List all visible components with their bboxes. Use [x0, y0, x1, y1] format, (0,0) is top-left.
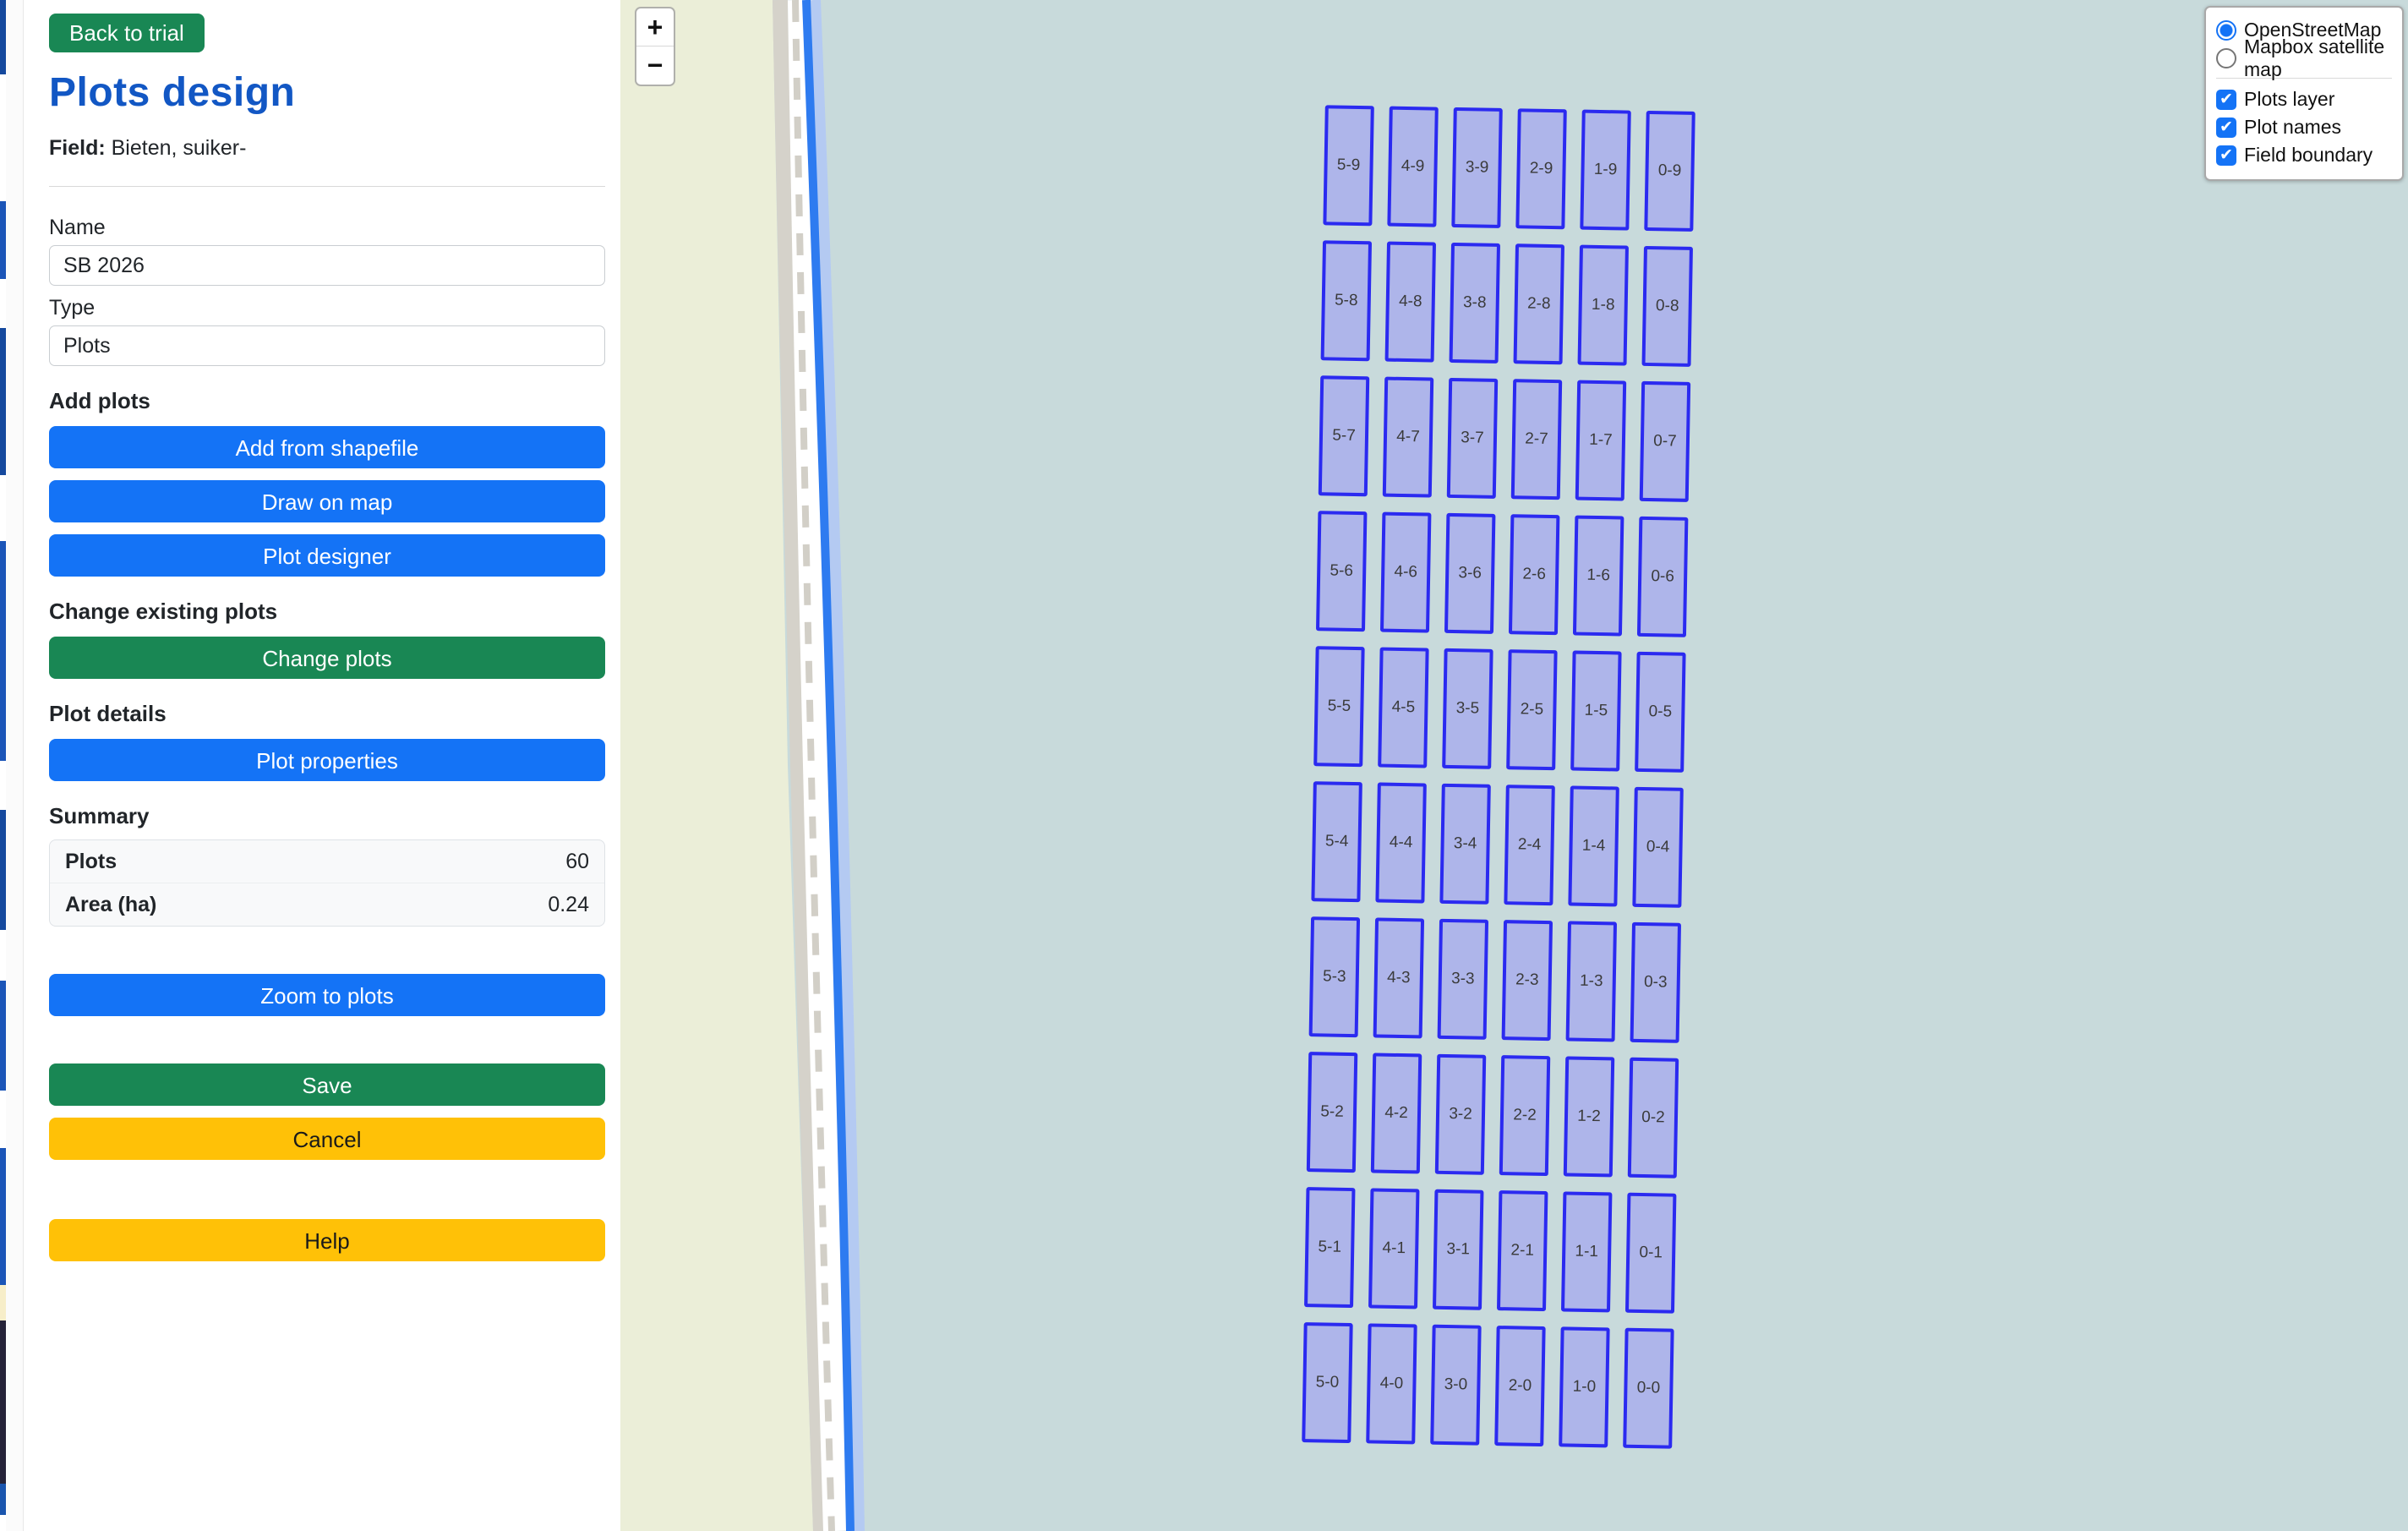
- save-button[interactable]: Save: [49, 1063, 605, 1106]
- checkbox-checked-icon[interactable]: ✔: [2216, 118, 2236, 138]
- plot-4-8[interactable]: 4-8: [1385, 242, 1436, 363]
- summary-area-value: 0.24: [548, 893, 589, 917]
- plot-4-6[interactable]: 4-6: [1380, 512, 1431, 633]
- plot-4-0[interactable]: 4-0: [1366, 1323, 1417, 1444]
- plot-label: 5-1: [1318, 1238, 1341, 1256]
- plot-label: 0-4: [1646, 838, 1670, 856]
- plot-label: 0-5: [1648, 703, 1672, 721]
- plot-0-5[interactable]: 0-5: [1635, 652, 1685, 773]
- summary-area-label: Area (ha): [65, 893, 156, 917]
- plot-label: 4-4: [1390, 834, 1413, 852]
- plot-3-6[interactable]: 3-6: [1444, 513, 1495, 634]
- plot-label: 4-6: [1394, 563, 1417, 582]
- plot-label: 2-3: [1515, 971, 1539, 989]
- plot-label: 0-8: [1656, 297, 1679, 315]
- divider: [49, 186, 605, 187]
- plot-label: 5-8: [1335, 292, 1358, 310]
- section-plot-details: Plot details: [49, 701, 605, 727]
- overlay-field-boundary-label: Field boundary: [2244, 144, 2373, 167]
- edge-strip-segment: [0, 761, 6, 810]
- plot-label: 2-2: [1513, 1106, 1537, 1124]
- change-plots-button[interactable]: Change plots: [49, 637, 605, 679]
- field-value: Bieten, suiker-: [112, 136, 247, 160]
- plot-1-5[interactable]: 1-5: [1570, 651, 1621, 772]
- plot-4-1[interactable]: 4-1: [1368, 1188, 1419, 1309]
- plot-5-1[interactable]: 5-1: [1304, 1187, 1355, 1308]
- plot-1-3[interactable]: 1-3: [1566, 921, 1617, 1042]
- plot-4-2[interactable]: 4-2: [1371, 1053, 1422, 1173]
- plot-label: 2-1: [1510, 1241, 1534, 1260]
- plot-label: 5-7: [1332, 427, 1356, 446]
- edge-strip-segment: [0, 1515, 6, 1531]
- plot-label: 1-1: [1575, 1243, 1598, 1261]
- edge-strip-segment: [0, 475, 6, 541]
- plot-label: 5-2: [1320, 1102, 1344, 1121]
- plot-1-7[interactable]: 1-7: [1575, 380, 1626, 501]
- plot-4-3[interactable]: 4-3: [1373, 917, 1424, 1038]
- plot-label: 5-4: [1325, 832, 1349, 850]
- plot-3-8[interactable]: 3-8: [1450, 243, 1500, 364]
- plot-0-2[interactable]: 0-2: [1628, 1058, 1679, 1178]
- edge-strip-segment: [0, 810, 6, 930]
- plot-2-0[interactable]: 2-0: [1494, 1326, 1545, 1446]
- page-title: Plots design: [49, 69, 605, 116]
- plot-2-6[interactable]: 2-6: [1509, 514, 1559, 635]
- plot-1-9[interactable]: 1-9: [1580, 110, 1630, 231]
- overlay-field-boundary[interactable]: ✔ Field boundary: [2216, 141, 2392, 169]
- plot-label: 0-1: [1639, 1244, 1663, 1262]
- window-edge-strip: [0, 0, 6, 1531]
- plot-label: 5-5: [1328, 697, 1351, 715]
- plot-0-3[interactable]: 0-3: [1630, 922, 1681, 1043]
- plot-label: 5-3: [1323, 967, 1346, 986]
- plot-3-3[interactable]: 3-3: [1438, 919, 1488, 1040]
- edge-strip-segment: [0, 74, 6, 201]
- plot-label: 3-5: [1455, 699, 1479, 718]
- plot-0-0[interactable]: 0-0: [1623, 1328, 1674, 1449]
- plot-label: 1-8: [1592, 296, 1615, 314]
- radio-selected-icon[interactable]: [2216, 20, 2236, 41]
- plot-label: 3-0: [1444, 1375, 1468, 1394]
- summary-row-area: Area (ha) 0.24: [50, 883, 604, 926]
- plot-0-4[interactable]: 0-4: [1632, 787, 1683, 908]
- plot-0-9[interactable]: 0-9: [1644, 111, 1695, 232]
- plot-4-4[interactable]: 4-4: [1375, 783, 1426, 904]
- map-canvas[interactable]: 5-94-93-92-91-90-95-84-83-82-81-80-85-74…: [620, 0, 2408, 1531]
- plot-label: 2-5: [1520, 700, 1543, 719]
- plot-label: 3-3: [1451, 970, 1475, 988]
- plot-label: 4-2: [1384, 1104, 1408, 1123]
- plot-3-2[interactable]: 3-2: [1435, 1054, 1486, 1175]
- plot-label: 4-7: [1396, 428, 1420, 446]
- radio-unselected-icon[interactable]: [2216, 48, 2236, 68]
- plot-label: 0-3: [1644, 973, 1668, 992]
- summary-row-plots: Plots 60: [50, 840, 604, 883]
- help-button[interactable]: Help: [49, 1219, 605, 1261]
- zoom-in-button[interactable]: +: [636, 8, 674, 46]
- edge-strip-segment: [0, 1484, 6, 1515]
- plot-3-1[interactable]: 3-1: [1433, 1189, 1483, 1310]
- plot-1-1[interactable]: 1-1: [1561, 1191, 1612, 1312]
- field-info: Field: Bieten, suiker-: [49, 136, 605, 161]
- plot-label: 1-5: [1584, 702, 1608, 720]
- plot-label: 3-4: [1454, 834, 1477, 853]
- plot-5-8[interactable]: 5-8: [1321, 240, 1372, 361]
- name-input[interactable]: [49, 245, 605, 286]
- summary-plots-value: 60: [565, 850, 589, 874]
- plots-grid: 5-94-93-92-91-90-95-84-83-82-81-80-85-74…: [1302, 105, 1695, 1448]
- zoom-to-plots-button[interactable]: Zoom to plots: [49, 974, 605, 1016]
- plot-label: 1-4: [1582, 837, 1606, 856]
- plot-4-7[interactable]: 4-7: [1383, 377, 1433, 498]
- plot-label: 1-3: [1580, 972, 1603, 991]
- edge-strip-segment: [0, 930, 6, 981]
- plot-3-4[interactable]: 3-4: [1439, 784, 1490, 905]
- edge-strip-segment: [0, 1091, 6, 1148]
- edge-strip-segment: [0, 981, 6, 1091]
- plot-2-9[interactable]: 2-9: [1515, 108, 1566, 229]
- plot-label: 4-0: [1380, 1375, 1404, 1393]
- baselayer-mapbox-satellite[interactable]: Mapbox satellite map: [2216, 44, 2392, 72]
- sidebar-panel: Back to trial Plots design Field: Bieten…: [24, 0, 620, 1531]
- overlay-plots-layer-label: Plots layer: [2244, 88, 2334, 111]
- plot-2-5[interactable]: 2-5: [1506, 649, 1557, 770]
- plot-0-6[interactable]: 0-6: [1637, 517, 1688, 637]
- plot-label: 4-8: [1399, 293, 1422, 311]
- plot-1-6[interactable]: 1-6: [1573, 516, 1624, 637]
- section-add-plots: Add plots: [49, 388, 605, 414]
- plot-label: 0-2: [1641, 1108, 1665, 1127]
- plot-2-7[interactable]: 2-7: [1511, 379, 1562, 500]
- plot-2-1[interactable]: 2-1: [1497, 1190, 1548, 1311]
- plot-label: 3-6: [1458, 564, 1482, 582]
- plot-5-3[interactable]: 5-3: [1309, 916, 1360, 1037]
- plot-label: 0-6: [1651, 567, 1674, 586]
- summary-plots-label: Plots: [65, 850, 117, 874]
- plot-5-6[interactable]: 5-6: [1316, 511, 1367, 632]
- plot-4-5[interactable]: 4-5: [1378, 648, 1428, 768]
- plot-3-0[interactable]: 3-0: [1430, 1325, 1481, 1446]
- plot-5-5[interactable]: 5-5: [1313, 646, 1364, 767]
- plot-label: 2-0: [1509, 1376, 1532, 1395]
- overlay-plot-names[interactable]: ✔ Plot names: [2216, 113, 2392, 141]
- plot-label: 0-0: [1636, 1379, 1660, 1397]
- plot-label: 2-9: [1530, 160, 1553, 178]
- plot-label: 5-9: [1337, 156, 1361, 175]
- plot-label: 1-0: [1572, 1378, 1596, 1397]
- plot-1-0[interactable]: 1-0: [1559, 1326, 1609, 1447]
- layer-control: OpenStreetMap Mapbox satellite map ✔ Plo…: [2204, 6, 2404, 181]
- plot-label: 1-9: [1594, 161, 1618, 179]
- edge-strip-segment: [0, 1148, 6, 1285]
- plot-2-2[interactable]: 2-2: [1499, 1055, 1550, 1176]
- plot-label: 0-9: [1658, 161, 1682, 180]
- plot-2-4[interactable]: 2-4: [1504, 785, 1554, 905]
- plot-label: 3-8: [1463, 293, 1487, 312]
- section-change-existing-plots: Change existing plots: [49, 599, 605, 625]
- edge-strip-segment: [0, 201, 6, 279]
- plot-0-8[interactable]: 0-8: [1642, 246, 1693, 367]
- type-input[interactable]: [49, 325, 605, 366]
- plot-0-7[interactable]: 0-7: [1640, 381, 1690, 502]
- plot-label: 2-4: [1518, 835, 1542, 854]
- plot-label: 2-6: [1522, 565, 1546, 583]
- plot-designer-button[interactable]: Plot designer: [49, 534, 605, 577]
- plot-1-8[interactable]: 1-8: [1578, 245, 1629, 366]
- plot-5-2[interactable]: 5-2: [1307, 1052, 1357, 1173]
- plot-label: 5-0: [1316, 1373, 1340, 1392]
- plot-5-7[interactable]: 5-7: [1319, 375, 1369, 496]
- plot-label: 1-6: [1586, 566, 1610, 585]
- plot-label: 0-7: [1653, 432, 1677, 451]
- plot-label: 1-2: [1577, 1107, 1601, 1126]
- edge-strip-segment: [0, 541, 6, 761]
- plot-label: 3-7: [1461, 429, 1484, 447]
- plot-5-4[interactable]: 5-4: [1311, 781, 1362, 902]
- name-label: Name: [49, 216, 605, 240]
- edge-strip-segment: [0, 279, 6, 328]
- plot-label: 4-3: [1387, 969, 1411, 987]
- plot-label: 5-6: [1330, 561, 1353, 580]
- draw-on-map-button[interactable]: Draw on map: [49, 480, 605, 522]
- plot-5-9[interactable]: 5-9: [1323, 105, 1373, 226]
- section-summary: Summary: [49, 803, 605, 829]
- overlay-plot-names-label: Plot names: [2244, 116, 2341, 139]
- plot-label: 4-5: [1391, 698, 1415, 717]
- overlay-plots-layer[interactable]: ✔ Plots layer: [2216, 85, 2392, 113]
- plot-properties-button[interactable]: Plot properties: [49, 739, 605, 781]
- plot-2-3[interactable]: 2-3: [1502, 920, 1553, 1041]
- back-to-trial-button[interactable]: Back to trial: [49, 14, 205, 52]
- type-label: Type: [49, 296, 605, 320]
- plot-2-8[interactable]: 2-8: [1514, 243, 1564, 364]
- plot-4-9[interactable]: 4-9: [1387, 107, 1438, 227]
- plot-label: 1-7: [1589, 431, 1613, 450]
- plots-design-app: Back to trial Plots design Field: Bieten…: [0, 0, 2408, 1531]
- baselayer-mapbox-satellite-label: Mapbox satellite map: [2244, 36, 2392, 81]
- plot-1-4[interactable]: 1-4: [1568, 785, 1619, 906]
- window-edge-gap: [6, 0, 24, 1531]
- plot-3-7[interactable]: 3-7: [1447, 378, 1498, 499]
- plot-label: 3-9: [1466, 158, 1489, 177]
- edge-strip-segment: [0, 1285, 6, 1320]
- plot-0-1[interactable]: 0-1: [1625, 1193, 1676, 1314]
- field-label: Field:: [49, 136, 106, 160]
- edge-strip-segment: [0, 1320, 6, 1484]
- summary-table: Plots 60 Area (ha) 0.24: [49, 839, 605, 927]
- edge-strip-segment: [0, 0, 6, 74]
- plot-3-5[interactable]: 3-5: [1442, 648, 1493, 769]
- edge-strip-segment: [0, 328, 6, 475]
- checkbox-checked-icon[interactable]: ✔: [2216, 90, 2236, 110]
- plot-3-9[interactable]: 3-9: [1451, 107, 1502, 228]
- plot-5-0[interactable]: 5-0: [1302, 1322, 1352, 1443]
- plot-label: 4-9: [1401, 157, 1425, 176]
- map-zoom-control: + −: [635, 7, 675, 86]
- zoom-out-button[interactable]: −: [636, 46, 674, 84]
- add-from-shapefile-button[interactable]: Add from shapefile: [49, 426, 605, 468]
- plot-label: 4-1: [1382, 1239, 1406, 1258]
- plot-label: 2-7: [1525, 429, 1548, 448]
- plot-label: 3-1: [1446, 1240, 1470, 1259]
- cancel-button[interactable]: Cancel: [49, 1118, 605, 1160]
- plot-1-2[interactable]: 1-2: [1564, 1056, 1614, 1177]
- checkbox-checked-icon[interactable]: ✔: [2216, 145, 2236, 166]
- plot-label: 2-8: [1527, 295, 1551, 314]
- plot-label: 3-2: [1449, 1105, 1472, 1124]
